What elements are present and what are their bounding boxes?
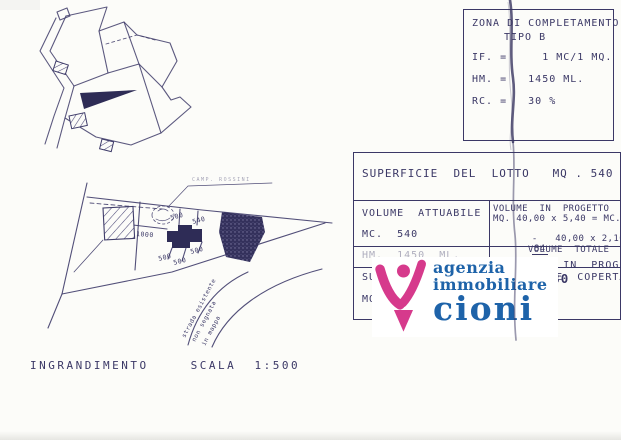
map-building-3: [100, 139, 114, 152]
location-map-sketch: [20, 4, 210, 164]
table-divider-1: [354, 200, 620, 201]
logo-head-dot: [397, 265, 410, 278]
map-parcel-division-1: [74, 64, 162, 87]
zoning-box: ZONA DI COMPLETAMENTO TIPO B IF. = 1 MC/…: [463, 9, 614, 141]
logo-word-cioni: cioni: [433, 292, 548, 325]
volume-progetto-calc1: MQ. 40,00 x 5,40 = MC. 216: [493, 214, 621, 224]
dim-label-540-top: 540: [191, 215, 206, 226]
map-road-right-edge: [50, 16, 74, 148]
dim-label-500-bottom1: 500: [157, 252, 172, 263]
zoning-hm-line: HM. = 1450 ML.: [472, 74, 584, 85]
logo-skirt-triangle: [394, 310, 413, 332]
tree-scribble-inner: [156, 209, 170, 221]
map-parcel-division-2: [99, 31, 108, 73]
volume-attuabile-label: VOLUME ATTUABILE: [362, 208, 481, 219]
vegetation-area: [219, 212, 265, 262]
inner-lot-link-line: [74, 240, 103, 272]
map-building-1: [53, 61, 68, 75]
agency-logo-text: agenzia immobiliare cioni: [433, 259, 548, 325]
map-parcel-division-3: [124, 22, 139, 64]
map-building-2: [69, 113, 87, 129]
scan-artifact-bottom: [0, 431, 621, 440]
top-parcel-label: CAMP. ROSSINI: [192, 177, 251, 183]
dim-label-1000: 1000: [136, 230, 154, 239]
volume-attuabile-value: MC. 540: [362, 229, 418, 240]
neighbor-building-hatched: [103, 206, 135, 240]
subject-lot-marker-triangle: [80, 90, 137, 109]
caption-ingrandimento: INGRANDIMENTO: [30, 359, 149, 372]
map-road-left-edge: [40, 18, 64, 144]
logo-left-arm: [380, 269, 400, 305]
map-top-structure: [57, 8, 70, 20]
volume-progetto-title: VOLUME IN PROGETTO: [493, 204, 609, 214]
zoning-title-line1: ZONA DI COMPLETAMENTO: [472, 18, 619, 29]
scan-artifact-top: [0, 0, 40, 10]
logo-word-agenzia: agenzia: [433, 259, 548, 276]
agency-logo-icon: [374, 259, 426, 335]
project-building-footprint: [167, 225, 202, 248]
lot-left-boundary: [48, 183, 87, 328]
agency-logo: agenzia immobiliare cioni: [372, 257, 558, 337]
zoning-rc-line: RC. = 30 %: [472, 96, 556, 107]
dim-label-500-bottom2: 500: [172, 256, 187, 267]
superficie-lotto-row: SUPERFICIE DEL LOTTO MQ . 540: [362, 167, 614, 180]
label-leader-line: [168, 183, 272, 207]
plan-caption: INGRANDIMENTO SCALA 1:500: [30, 359, 300, 372]
zoning-title-line2: TIPO B: [504, 32, 546, 43]
lot-plan-sketch: CAMP. ROSSINI 500 540 1000 500 500 500 s…: [22, 162, 344, 360]
dim-label-500-bottom3: 500: [189, 245, 204, 256]
scanned-document-page: CAMP. ROSSINI 500 540 1000 500 500 500 s…: [0, 0, 621, 440]
road-outer-curve: [212, 269, 322, 347]
dim-label-500-top: 500: [169, 211, 184, 222]
zoning-if-line: IF. = 1 MC/1 MQ.: [472, 52, 612, 63]
caption-scala: SCALA 1:500: [191, 359, 300, 372]
